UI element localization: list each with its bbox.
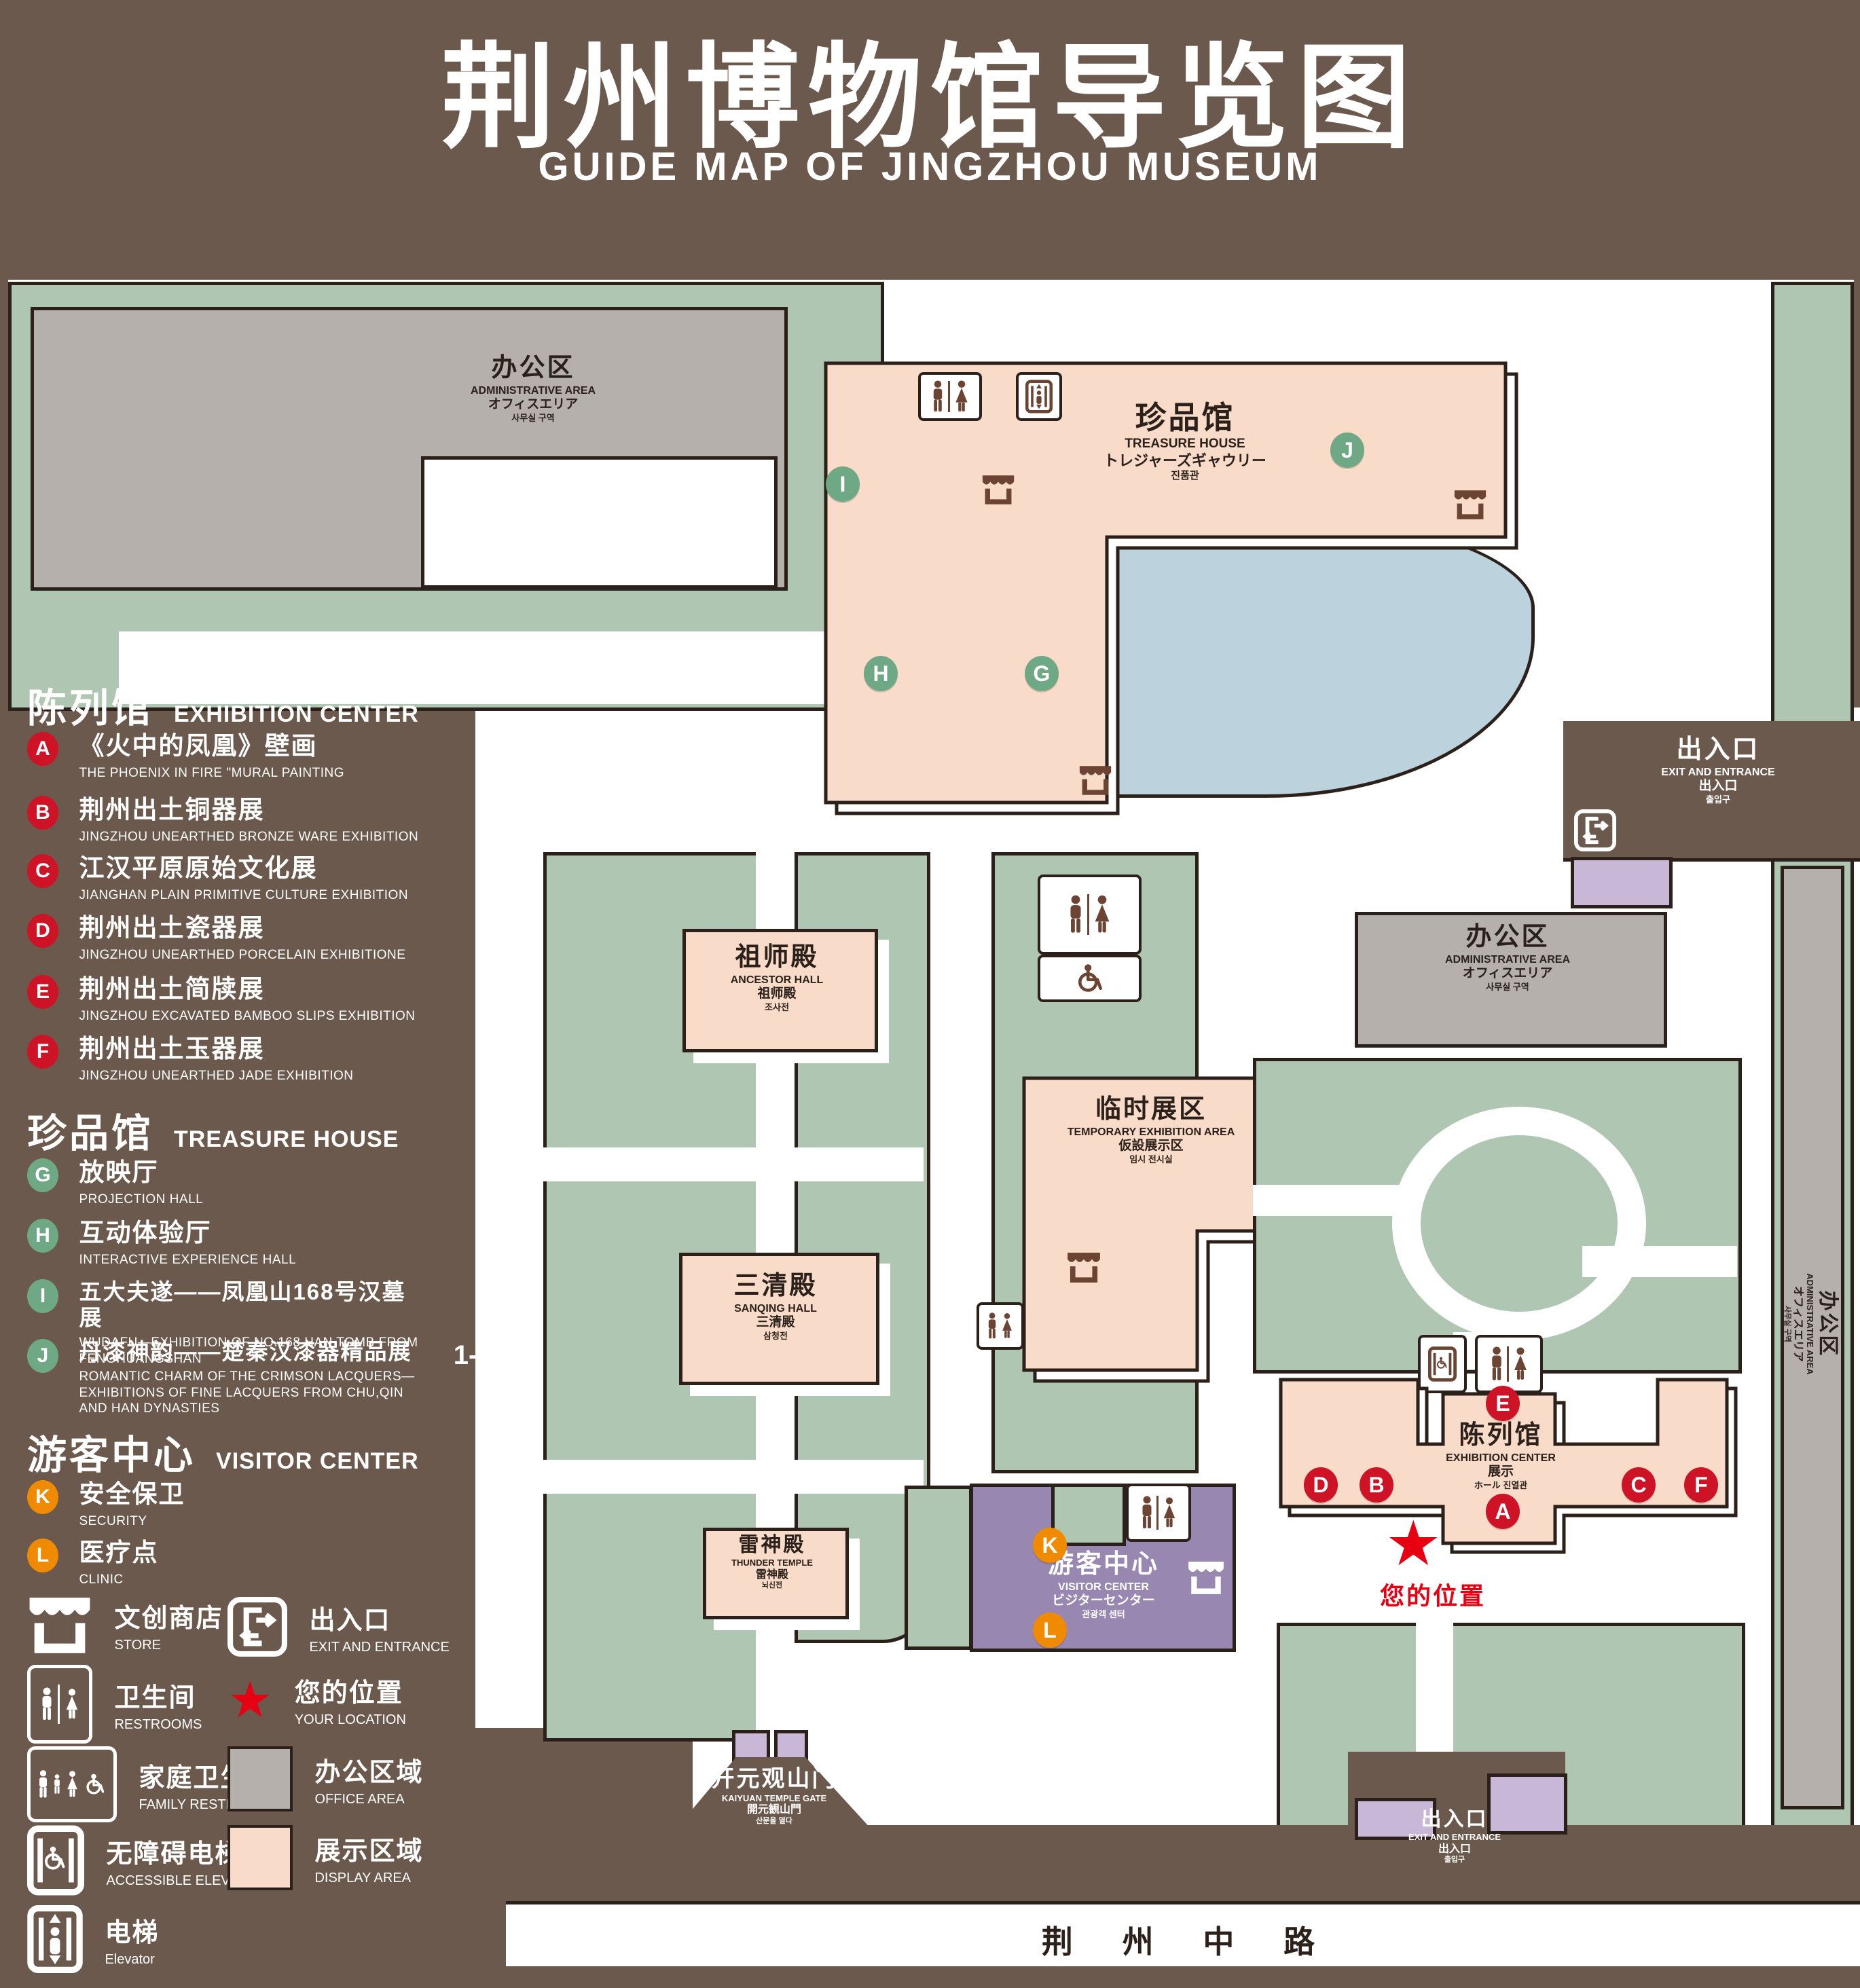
marker-badge: A [27, 732, 58, 766]
restroom-icon [977, 1302, 1024, 1350]
location-star-icon: ★ [1385, 1513, 1441, 1575]
road-name-label: 荆 州 中 路 [917, 1917, 1460, 1962]
legend-symbol-elevator: 电梯Elevator [27, 1905, 159, 1973]
marker-badge: F [27, 1035, 58, 1069]
legend-section-visitor-center: 游客中心VISITOR CENTER [27, 1423, 419, 1480]
restroom-icon [918, 372, 982, 421]
accessible-elevator-icon [27, 1825, 84, 1896]
garden-path [1582, 1246, 1737, 1277]
store-icon [1066, 1253, 1101, 1283]
cross-path [543, 1147, 924, 1181]
map-marker-c: C [1622, 1467, 1656, 1503]
exit-bottom-label: 出入口 EXIT AND ENTRANCE 出入口 출입구 [1360, 1807, 1550, 1864]
legend-symbol-display-area: 展示区域DISPLAY AREA [227, 1825, 423, 1890]
marker-badge: G [27, 1158, 58, 1192]
legend-item-d: D 荆州出土瓷器展JINGZHOU UNEARTHED PORCELAIN EX… [27, 914, 489, 963]
entrance-block [1571, 857, 1673, 908]
marker-badge: J [27, 1339, 58, 1373]
admin-top-left-label: 办公区 ADMINISTRATIVE AREA オフィスエリア 사무실 구역 [387, 353, 679, 423]
thunder-temple-label: 雷神殿 THUNDER TEMPLE 雷神殿 뇌신전 [697, 1533, 847, 1590]
marker-badge: L [27, 1539, 58, 1572]
map-marker-e: E [1486, 1386, 1520, 1421]
marker-badge: I [27, 1279, 58, 1313]
restroom-icon [1038, 875, 1142, 955]
legend-item-f: F 荆州出土玉器展JINGZHOU UNEARTHED JADE EXHIBIT… [27, 1035, 489, 1084]
store-icon [1187, 1562, 1225, 1594]
road-lower-band [506, 1966, 1860, 1988]
store-icon [1453, 490, 1487, 519]
visitor-center-label: 游客中心 VISITOR CENTER ビジターセンター 관광객 센터 [998, 1549, 1209, 1619]
display-area-swatch [227, 1825, 293, 1890]
exit-icon [1574, 809, 1616, 851]
map-marker-l: L [1033, 1613, 1067, 1648]
legend-symbol-your-location: ★ 您的位置YOUR LOCATION [227, 1672, 406, 1728]
legend-item-c: C 江汉平原原始文化展JIANGHAN PLAIN PRIMITIVE CULT… [27, 854, 489, 903]
marker-badge: D [27, 914, 58, 948]
restroom-icon [27, 1665, 92, 1744]
kaiyuan-gate-label: 开元观山门 KAIYUAN TEMPLE GATE 開元観山門 산문을 열다 [669, 1765, 879, 1826]
legend-item-l: L 医疗点CLINIC 1F [27, 1539, 489, 1587]
courtyard-left-of-visitor [905, 1486, 972, 1650]
admin-courtyard [421, 456, 778, 589]
map-marker-f: F [1684, 1467, 1718, 1503]
marker-badge: H [27, 1219, 58, 1253]
legend-item-h: H 互动体验厅INTERACTIVE EXPERIENCE HALL 1F [27, 1219, 489, 1268]
family-restroom-icon [27, 1746, 117, 1822]
map-marker-h: H [864, 656, 898, 691]
garden-loop-path [1392, 1107, 1646, 1340]
exit-top-right-label: 出入口 EXIT AND ENTRANCE 出入口 출입구 [1623, 735, 1813, 805]
legend-item-k: K 安全保卫SECURITY 1F [27, 1480, 489, 1529]
admin-mid-right-label: 办公区 ADMINISTRATIVE AREA オフィスエリア 사무실 구역 [1358, 922, 1657, 992]
marker-badge: E [27, 975, 58, 1009]
elevator-icon [27, 1905, 83, 1973]
legend-symbol-restrooms: 卫生间RESTROOMS [27, 1665, 202, 1744]
treasure-house-label: 珍品馆 TREASURE HOUSE トレジャーズギャウリー 진품관 [1032, 399, 1338, 482]
map-marker-g: G [1025, 656, 1059, 691]
legend-item-g: G 放映厅PROJECTION HALL 1F [27, 1158, 489, 1207]
map-marker-k: K [1033, 1528, 1067, 1563]
legend-item-j: J 丹漆神韵——楚秦汉漆器精品展ROMANTIC CHARM OF THE CR… [27, 1339, 489, 1417]
legend-item-e: E 荆州出土简牍展JINGZHOU EXCAVATED BAMBOO SLIPS… [27, 975, 489, 1024]
store-icon [1078, 766, 1112, 795]
marker-badge: B [27, 796, 58, 830]
ancestor-hall-label: 祖师殿 ANCESTOR HALL 祖师殿 조사전 [675, 942, 879, 1012]
store-icon [981, 475, 1015, 504]
office-area-swatch [227, 1746, 293, 1811]
store-icon [27, 1598, 92, 1653]
accessible-restroom-icon [1038, 955, 1142, 1002]
legend-item-a: A 《火中的凤凰》壁画THE PHOENIX IN FIRE "MURAL PA… [27, 732, 489, 781]
sanqing-hall-label: 三清殿 SANQING HALL 三清殿 삼청전 [674, 1271, 877, 1341]
legend-section-exhibition-center: 陈列馆EXHIBITION CENTER [27, 676, 419, 733]
guide-map-poster: 荆州博物馆导览图 GUIDE MAP OF JINGZHOU MUSEUM 办公… [0, 0, 1860, 1988]
exhibition-center-label: 陈列馆 EXHIBITION CENTER 展示 ホール 진열관 [1396, 1420, 1606, 1490]
restroom-icon [1126, 1484, 1191, 1542]
map-marker-j: J [1330, 432, 1364, 468]
cross-path [543, 1460, 924, 1494]
admin-right-strip-label: 办公区 ADMINISTRATIVE AREA オフィスエリア 사무실 구역 [1779, 1222, 1840, 1426]
map-marker-d: D [1304, 1467, 1338, 1503]
legend-symbol-exit: 出入口EXIT AND ENTRANCE [227, 1597, 450, 1657]
legend-item-b: B 荆州出土铜器展JINGZHOU UNEARTHED BRONZE WARE … [27, 796, 489, 845]
page-subtitle: GUIDE MAP OF JINGZHOU MUSEUM [0, 144, 1860, 189]
temporary-exhibition-label: 临时展区 TEMPORARY EXHIBITION AREA 仮設展示区 임시 … [1015, 1094, 1287, 1164]
legend-section-treasure-house: 珍品馆TREASURE HOUSE [27, 1101, 399, 1158]
map-marker-i: I [826, 466, 860, 502]
garden-path [1253, 1185, 1399, 1216]
map-marker-a: A [1486, 1494, 1520, 1529]
location-star-icon: ★ [227, 1675, 272, 1725]
exit-icon [227, 1597, 287, 1657]
legend-symbol-office-area: 办公区域OFFICE AREA [227, 1746, 423, 1811]
legend-symbol-store: 文创商店STORE [27, 1597, 223, 1653]
marker-badge: K [27, 1480, 58, 1514]
marker-badge: C [27, 854, 58, 888]
map-marker-b: B [1360, 1467, 1393, 1503]
your-location-label: 您的位置 [1351, 1577, 1514, 1612]
